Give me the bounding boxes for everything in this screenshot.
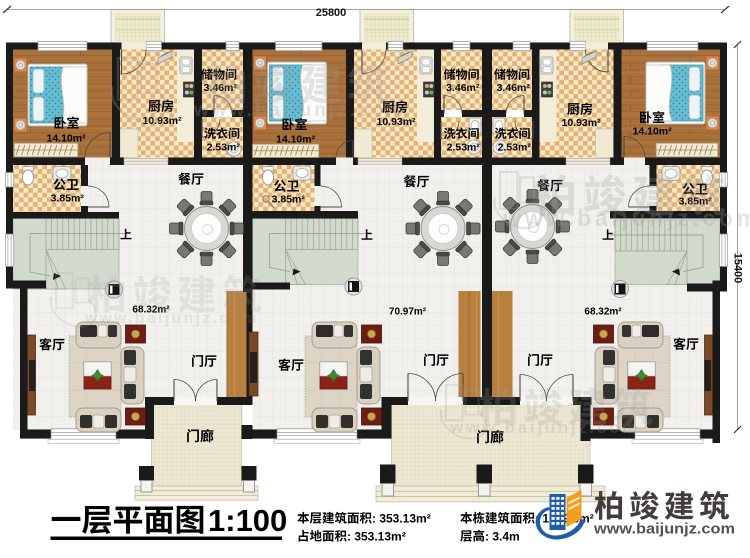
svg-text:3.46m²: 3.46m² <box>497 82 531 94</box>
svg-text:www.baijunjz.com: www.baijunjz.com <box>449 418 640 437</box>
svg-text:25800: 25800 <box>316 7 347 19</box>
svg-text:www.baijunjz.com: www.baijunjz.com <box>193 100 406 121</box>
svg-text:15400: 15400 <box>732 253 744 284</box>
svg-text:70.97m²: 70.97m² <box>389 307 427 318</box>
svg-text:14.10m²: 14.10m² <box>633 125 673 137</box>
svg-text:10.93m²: 10.93m² <box>562 117 602 129</box>
svg-text:14.10m²: 14.10m² <box>276 133 316 145</box>
svg-text:68.32m²: 68.32m² <box>584 307 622 318</box>
svg-text:2.53m²: 2.53m² <box>498 141 532 153</box>
svg-text:www.baijunjz.com: www.baijunjz.com <box>502 205 750 231</box>
svg-text:3.85m²: 3.85m² <box>272 193 306 205</box>
svg-text:: 3.4m: : 3.4m <box>485 530 520 544</box>
svg-text:2.53m²: 2.53m² <box>447 141 481 153</box>
svg-text:3.46m²: 3.46m² <box>446 82 480 94</box>
svg-text:: 353.13m²: : 353.13m² <box>372 512 431 526</box>
svg-text:3.85m²: 3.85m² <box>51 192 85 204</box>
svg-text:14.10m²: 14.10m² <box>47 132 87 144</box>
svg-text:www.baijunjz.com: www.baijunjz.com <box>84 310 259 327</box>
svg-text:: 353.13m²: : 353.13m² <box>347 530 406 544</box>
svg-text:1:100: 1:100 <box>208 503 287 538</box>
svg-text:www.baijunjz.com: www.baijunjz.com <box>593 521 735 538</box>
svg-text:2.53m²: 2.53m² <box>207 141 241 153</box>
